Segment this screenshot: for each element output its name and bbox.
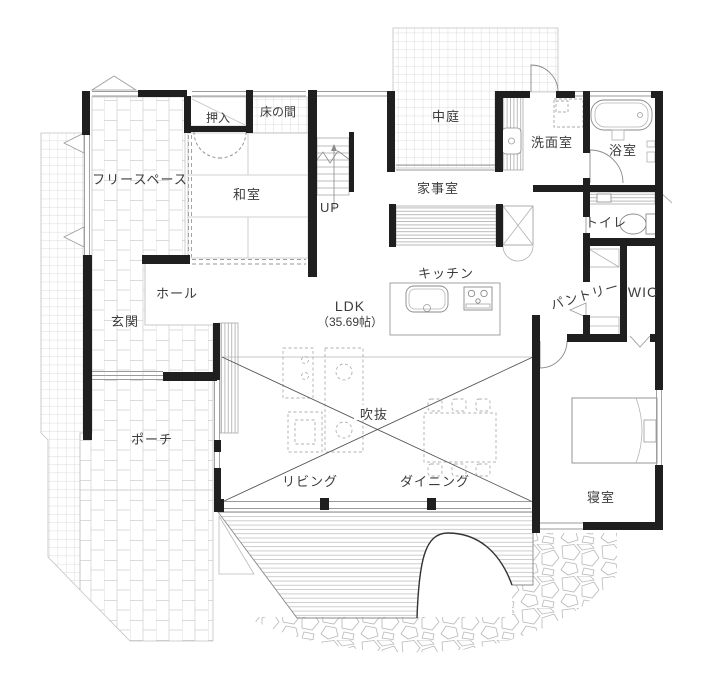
floor-plan-drawing: フリースペース 押入 床の間 和室 UP 中庭 洗面室 浴室 家事室 トイレ キ… <box>0 0 717 690</box>
label-kaji: 家事室 <box>417 181 459 196</box>
label-free-space: フリースペース <box>92 172 188 187</box>
wic-fold-door <box>630 336 650 347</box>
floor-plan: フリースペース 押入 床の間 和室 UP 中庭 洗面室 浴室 家事室 トイレ キ… <box>0 0 717 690</box>
label-wic: WIC <box>628 284 658 300</box>
kitchen-island <box>390 283 500 335</box>
sofa-set <box>325 348 363 452</box>
label-ldk-area: （35.69帖） <box>317 314 383 329</box>
coffee-table <box>288 412 322 452</box>
dining-set <box>424 399 496 476</box>
washbasin-sink <box>502 128 521 154</box>
label-toilet: トイレ <box>585 215 627 230</box>
washing-machine <box>554 99 583 127</box>
label-hall: ホール <box>156 286 198 301</box>
label-dining: ダイニング <box>400 474 470 489</box>
void-atrium-mark <box>222 357 533 502</box>
approach-tile-strip <box>41 133 84 590</box>
label-bath: 浴室 <box>609 143 637 158</box>
label-tokonoma: 床の間 <box>260 105 296 119</box>
storage-closet-x <box>503 206 533 261</box>
stairs-up-arrow <box>331 144 337 151</box>
bedroom-door <box>540 341 567 368</box>
label-porch: ポーチ <box>131 432 173 447</box>
sofa <box>283 348 313 398</box>
bedroom-bed <box>572 398 657 463</box>
label-washitsu: 和室 <box>233 187 261 202</box>
label-ldk: LDK <box>335 298 365 314</box>
label-living: リビング <box>282 474 338 489</box>
label-senmen: 洗面室 <box>531 135 573 150</box>
label-bedroom: 寝室 <box>587 490 615 505</box>
genkan-bench <box>220 323 238 433</box>
label-stairs-up: UP <box>320 200 340 215</box>
living-furniture <box>283 348 363 452</box>
wood-deck <box>218 512 533 618</box>
label-nakaniwa: 中庭 <box>432 109 460 124</box>
kaji-counter <box>396 206 496 245</box>
toilet-counter <box>585 192 655 204</box>
label-genkan: 玄関 <box>111 314 139 329</box>
shower-fixture <box>647 141 655 147</box>
label-oshiire: 押入 <box>206 111 230 125</box>
label-fukinuke: 吹抜 <box>360 407 388 422</box>
label-pantry: パントリー <box>549 279 621 313</box>
label-kitchen: キッチン <box>418 266 474 281</box>
dining-table <box>424 413 496 462</box>
washroom-vanity <box>500 96 523 170</box>
ldk-south-window <box>224 502 531 509</box>
